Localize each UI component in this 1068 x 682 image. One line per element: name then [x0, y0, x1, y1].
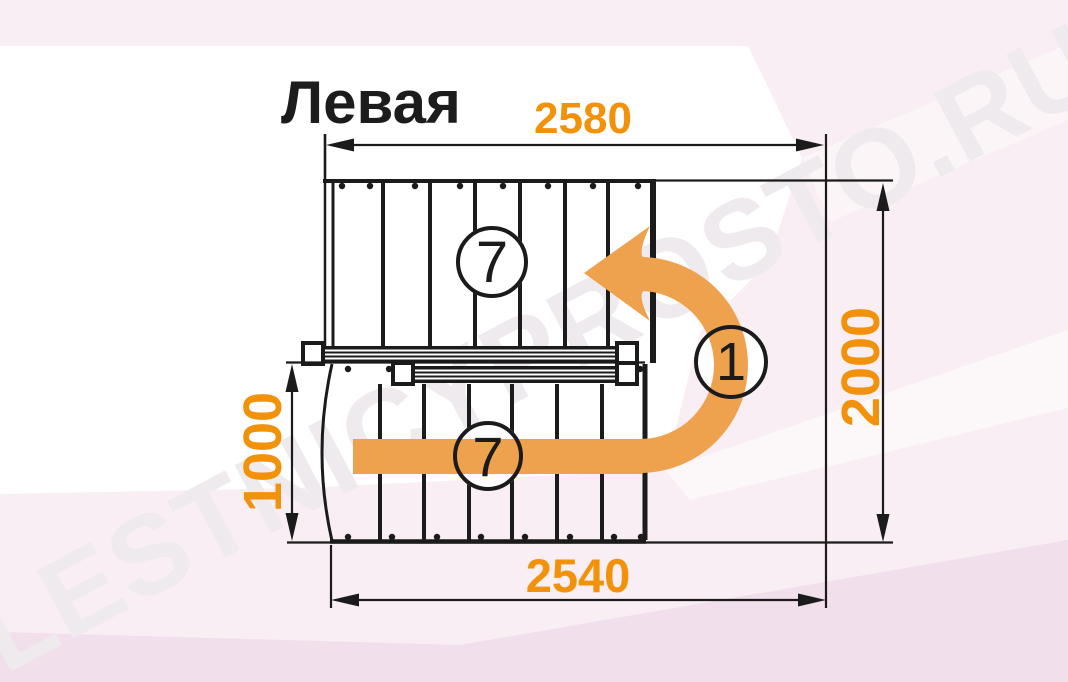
- page-title: Левая: [281, 68, 461, 137]
- lower-flight-step-count: 7: [472, 424, 503, 489]
- lower-flight-step-count-badge: 7: [453, 421, 523, 491]
- dimension-value-right: 2000: [830, 307, 892, 427]
- upper-flight-step-count-badge: 7: [456, 226, 528, 298]
- upper-flight-step-count: 7: [476, 229, 508, 296]
- dimension-value-bottom: 2540: [526, 548, 631, 603]
- dimension-value-top: 2580: [534, 94, 632, 144]
- turn-arrow-head-icon: [584, 226, 650, 321]
- landing-number-badge: 1: [694, 325, 768, 399]
- staircase-plan: LESTNICYPROSTO.RU: [0, 0, 1068, 682]
- dimension-value-left: 1000: [232, 392, 294, 512]
- landing-number: 1: [716, 331, 746, 393]
